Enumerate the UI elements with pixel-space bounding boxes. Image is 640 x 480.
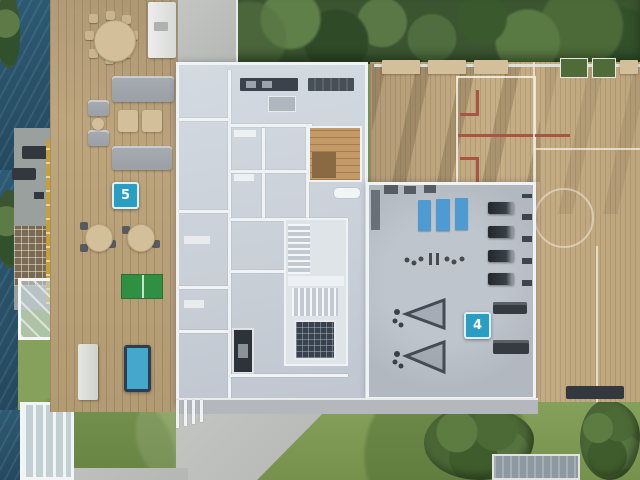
court-line [596, 246, 598, 402]
bistro-table [85, 224, 113, 252]
outdoor-sofa [112, 76, 174, 102]
planter [592, 58, 616, 78]
court-red-line [476, 90, 479, 116]
side-table [92, 118, 104, 130]
skylight-grate [492, 454, 580, 480]
dining-chair [85, 31, 94, 40]
court-bench [382, 60, 420, 74]
side-table [34, 192, 44, 199]
treadmill [488, 202, 514, 214]
building-base-wall [176, 398, 538, 414]
amenity-marker-5: 5 [112, 182, 139, 209]
sun-lounger [22, 146, 48, 159]
billiards-table [124, 345, 151, 392]
amenity-marker-4: 4 [464, 312, 491, 339]
glass-canopy-lower [20, 402, 74, 480]
dining-chair [106, 11, 115, 20]
aerial-amenity-rendering: 5 [0, 0, 640, 480]
court-bench [474, 60, 508, 74]
shelf [184, 236, 210, 244]
outdoor-sofa [112, 146, 172, 170]
elevator [294, 320, 336, 360]
upper-walkway [176, 0, 238, 66]
railing [200, 400, 203, 422]
armchair [88, 100, 109, 116]
marker-5-label: 5 [121, 188, 130, 203]
appliance [262, 81, 272, 88]
staircase [292, 288, 338, 316]
court-red-line [458, 134, 570, 137]
sauna-bench [312, 152, 336, 178]
bar-sink [154, 22, 168, 31]
wall [179, 118, 229, 121]
wall [230, 270, 286, 273]
marker-4-label: 4 [473, 318, 482, 333]
treadmill [488, 273, 514, 285]
weight-rack [522, 194, 532, 286]
court-bench-dark [566, 386, 624, 399]
railing [192, 400, 195, 424]
treadmill [488, 226, 514, 238]
exercise-mat [436, 199, 450, 231]
vanity-counter [234, 174, 254, 181]
court-line [534, 148, 640, 150]
gym-equipment [384, 185, 398, 194]
ottoman [142, 110, 162, 132]
exercise-mat [418, 200, 431, 231]
shelf [184, 300, 204, 308]
armchair [88, 130, 109, 146]
gym-shelf [371, 190, 380, 230]
railing [176, 400, 179, 428]
dumbbells-icon [402, 250, 472, 270]
locker-row [308, 78, 354, 91]
bench-white [78, 344, 98, 400]
workout-bench [493, 302, 527, 314]
wall [179, 286, 229, 289]
staircase [288, 224, 310, 274]
ottoman [118, 110, 138, 132]
wall [230, 124, 312, 127]
gym-equipment [424, 185, 436, 193]
cabinet [268, 96, 296, 112]
wall [230, 374, 348, 377]
swimming-pool-water [0, 410, 20, 480]
appliance [246, 81, 256, 88]
stair-landing [288, 276, 344, 286]
dining-chair [89, 14, 98, 23]
dumbbells [402, 250, 472, 270]
ping-pong-table [121, 274, 163, 299]
dining-table [94, 20, 136, 62]
court-circle [534, 188, 594, 248]
trees [224, 0, 640, 64]
sun-lounger [12, 168, 36, 180]
planter [560, 58, 588, 78]
treadmill [488, 250, 514, 262]
workout-bench [493, 340, 529, 354]
wall [262, 128, 265, 220]
exercise-mat [455, 198, 468, 230]
wall [179, 210, 229, 213]
court-bench [620, 60, 638, 74]
gym-equipment [404, 186, 416, 194]
railing [184, 400, 187, 426]
vanity-counter [234, 130, 256, 137]
court-red-line [476, 157, 479, 183]
court-bench [428, 60, 466, 74]
cable-machines [388, 294, 468, 382]
fireplace-insert [238, 344, 248, 358]
tree [0, 0, 20, 68]
cable-machines-icon [388, 294, 468, 382]
bistro-table [127, 224, 155, 252]
wall [179, 330, 229, 333]
wall [230, 170, 308, 173]
bathtub [334, 188, 360, 198]
